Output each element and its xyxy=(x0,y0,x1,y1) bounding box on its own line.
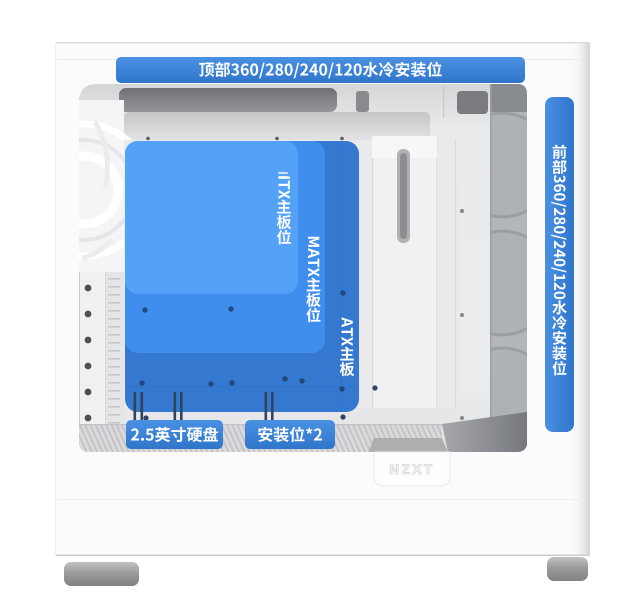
svg-text:NZXT: NZXT xyxy=(389,462,434,477)
